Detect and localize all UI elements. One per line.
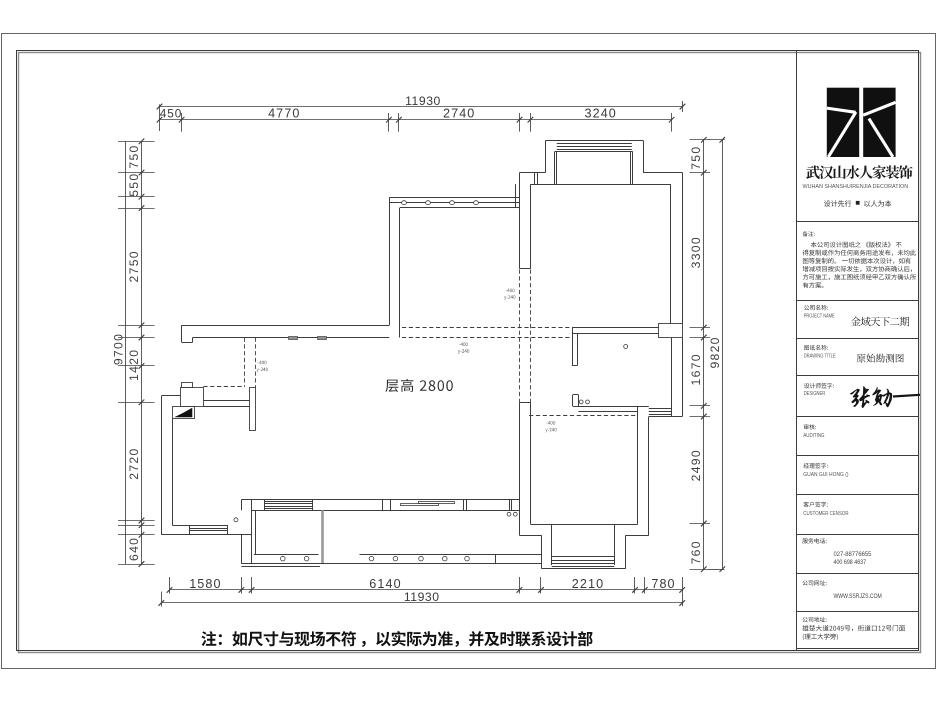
svg-text:450: 450 xyxy=(160,107,182,121)
svg-text:AUDITING: AUDITING xyxy=(803,433,824,439)
svg-text:2720: 2720 xyxy=(127,447,141,479)
svg-text:WWW.SSRJZS.COM: WWW.SSRJZS.COM xyxy=(834,593,882,600)
svg-text:550: 550 xyxy=(127,173,141,197)
svg-text:3300: 3300 xyxy=(689,236,703,268)
svg-text:750: 750 xyxy=(689,146,703,170)
svg-text:3240: 3240 xyxy=(584,106,616,120)
svg-text:PROJECT NAME: PROJECT NAME xyxy=(804,314,835,320)
svg-text:9820: 9820 xyxy=(708,336,722,368)
svg-text:750: 750 xyxy=(127,144,141,168)
svg-text:027-88776655: 027-88776655 xyxy=(834,551,872,558)
svg-text:GUAN GUI HONG (): GUAN GUI HONG () xyxy=(803,472,848,478)
svg-text:WUHAN SHANSHUIRENJIA DECORATIO: WUHAN SHANSHUIRENJIA DECORATION xyxy=(803,184,909,190)
svg-text:400 698 4637: 400 698 4637 xyxy=(834,559,867,566)
svg-text:1580: 1580 xyxy=(189,577,221,591)
svg-text:4770: 4770 xyxy=(268,106,300,120)
svg-text:11930: 11930 xyxy=(405,94,441,108)
svg-text:2740: 2740 xyxy=(443,106,475,120)
svg-text:1420: 1420 xyxy=(127,349,141,381)
svg-text:DESIGNER: DESIGNER xyxy=(804,391,826,397)
svg-text:2210: 2210 xyxy=(572,577,604,591)
svg-text:6140: 6140 xyxy=(369,577,401,591)
svg-text:2490: 2490 xyxy=(689,449,703,481)
svg-text:CUSTOMER CENSOR: CUSTOMER CENSOR xyxy=(803,511,848,517)
svg-text:1670: 1670 xyxy=(689,353,703,385)
svg-text:DRAWING TITLE: DRAWING TITLE xyxy=(804,354,836,360)
svg-text:2750: 2750 xyxy=(127,250,141,282)
svg-text:780: 780 xyxy=(651,577,675,591)
svg-text:760: 760 xyxy=(689,540,703,564)
svg-text:9700: 9700 xyxy=(111,333,125,365)
svg-text:640: 640 xyxy=(127,537,141,561)
svg-text:11930: 11930 xyxy=(404,590,440,604)
